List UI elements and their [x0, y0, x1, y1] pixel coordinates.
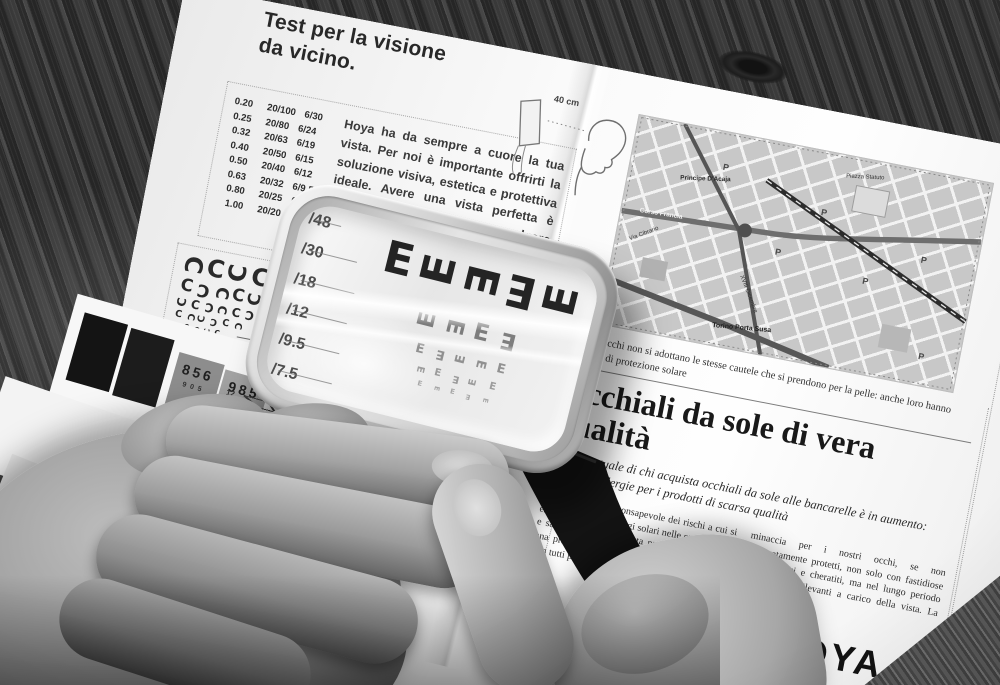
tumbling-e-glyph: E: [473, 358, 488, 370]
tumbling-e-glyph: E: [449, 388, 455, 396]
acuity-value: 20/25: [258, 189, 284, 204]
parking-marker: P: [917, 351, 925, 362]
tumbling-e-glyph: E: [453, 353, 468, 365]
tumbling-e-glyph: E: [414, 365, 425, 374]
tumbling-e-glyph: E: [481, 397, 489, 403]
tumbling-e-glyph: E: [488, 382, 497, 393]
landolt-ring: C: [197, 315, 208, 324]
acuity-value: 6/19: [296, 137, 322, 152]
tumbling-e-glyph: E: [468, 378, 479, 387]
tumbling-e-glyph: E: [451, 373, 460, 384]
acuity-value: 0.63: [227, 168, 253, 183]
tumbling-e-glyph: E: [417, 380, 423, 388]
parking-marker: P: [861, 276, 869, 287]
landolt-ring: C: [212, 285, 231, 300]
acuity-value: 20/50: [262, 146, 288, 161]
acuity-value: 6/30: [303, 109, 329, 124]
landolt-ring: C: [190, 298, 201, 311]
landolt-ring: C: [180, 254, 207, 276]
landolt-ring: C: [244, 309, 255, 322]
tumbling-e-glyph: E: [465, 392, 471, 400]
bottom-shadow: [0, 575, 720, 685]
fan-label: 90: [209, 423, 220, 434]
acuity-value: 20/32: [259, 175, 285, 190]
acuity-value: 20/63: [263, 131, 289, 146]
tumbling-e-glyph: E: [495, 362, 507, 377]
acuity-value: 1.00: [224, 197, 250, 212]
acuity-value: 20/100: [266, 102, 297, 118]
landolt-ring: C: [221, 318, 230, 329]
parking-marker: P: [722, 162, 730, 173]
acuity-value: 0.20: [234, 96, 260, 111]
map-label: Piazza Statuto: [846, 173, 885, 181]
landolt-ring: C: [232, 322, 243, 331]
landolt-ring: C: [225, 262, 252, 284]
landolt-ring: C: [174, 309, 183, 320]
landolt-ring: C: [196, 280, 211, 299]
acuity-value: 0.50: [228, 154, 254, 169]
tumbling-e-glyph: E: [432, 385, 440, 391]
tumbling-e-glyph: E: [455, 260, 505, 300]
parking-marker: P: [774, 247, 782, 258]
landolt-ring: C: [216, 305, 229, 316]
acuity-value: 6/15: [294, 152, 320, 167]
acuity-value: 0.32: [231, 125, 257, 140]
landolt-ring: C: [231, 306, 242, 319]
map-label: Principe D'Acaja: [680, 175, 731, 184]
map-label: Via Cibrario: [629, 225, 661, 242]
acuity-value: 20/40: [261, 160, 287, 175]
acuity-value: 20/80: [265, 117, 291, 132]
landolt-ring: C: [185, 313, 196, 322]
acuity-value: 20/20: [256, 204, 282, 219]
tumbling-e-glyph: E: [433, 368, 442, 379]
landolt-ring: C: [203, 301, 214, 314]
landolt-ring: C: [209, 316, 218, 327]
landolt-ring: C: [175, 297, 188, 308]
acuity-value: 6/24: [297, 123, 323, 138]
parking-marker: P: [820, 207, 828, 218]
acuity-value: 0.40: [230, 139, 256, 154]
parking-marker: P: [920, 255, 928, 266]
photo-scene: Test per la visione da vicino. 0.2020/10…: [0, 0, 1000, 685]
acuity-value: 0.25: [232, 110, 258, 125]
acuity-value: 0.80: [225, 183, 251, 198]
landolt-ring: C: [179, 277, 194, 296]
